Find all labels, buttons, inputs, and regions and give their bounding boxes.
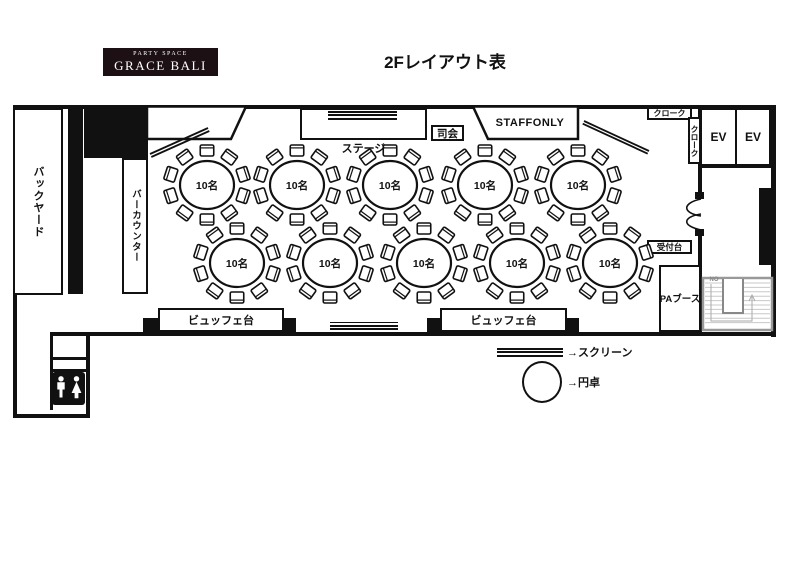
chair-icon [299, 282, 316, 299]
table-seat-label: 10名 [413, 257, 435, 270]
round-table: 10名 [567, 223, 654, 303]
chair-icon [323, 223, 337, 234]
chair-icon [344, 227, 361, 244]
chair-icon [176, 204, 193, 221]
round-table: 10名 [474, 223, 561, 303]
chair-icon [603, 292, 617, 303]
chair-icon [592, 149, 609, 166]
chair-icon [290, 214, 304, 225]
chair-icon [579, 282, 596, 299]
chair-icon [359, 204, 376, 221]
chair-icon [326, 166, 341, 182]
chair-icon [164, 188, 179, 204]
reception-label: 受付台 [647, 240, 692, 254]
chair-icon [393, 227, 410, 244]
chair-icon [567, 266, 582, 282]
chair-icon [567, 244, 582, 260]
chair-icon [359, 266, 374, 282]
chair-icon [221, 204, 238, 221]
chair-icon [474, 244, 489, 260]
floor-plan-page: { "page": { "title": "2Fレイアウト表" }, "bran… [0, 0, 800, 565]
chair-icon [514, 188, 529, 204]
chair-icon [571, 145, 585, 156]
chair-icon [454, 149, 471, 166]
chair-icon [478, 214, 492, 225]
chair-icon [251, 282, 268, 299]
chair-icon [164, 166, 179, 182]
chair-icon [344, 282, 361, 299]
chair-icon [254, 166, 269, 182]
chair-icon [486, 227, 503, 244]
chair-icon [194, 266, 209, 282]
chair-icon [287, 266, 302, 282]
chair-icon [510, 292, 524, 303]
chair-icon [347, 188, 362, 204]
chair-icon [607, 188, 622, 204]
chair-icon [547, 149, 564, 166]
chair-icon [311, 204, 328, 221]
chair-icon [393, 282, 410, 299]
table-seat-label: 10名 [474, 179, 496, 192]
bar-counter-label: バーカウンター [122, 158, 148, 294]
chair-icon [381, 266, 396, 282]
chair-icon [547, 204, 564, 221]
round-table: 10名 [164, 145, 251, 225]
chair-icon [230, 223, 244, 234]
brand-logo: PARTY SPACE GRACE BALI [103, 48, 218, 76]
plan-shapes: 10名10名10名10名10名10名10名10名10名10名 [0, 0, 800, 565]
round-table: 10名 [287, 223, 374, 303]
round-table: 10名 [535, 145, 622, 225]
page-title: 2Fレイアウト表 [360, 49, 530, 71]
backyard-label: バックヤード [13, 108, 63, 295]
chair-icon [417, 223, 431, 234]
chair-icon [486, 282, 503, 299]
chair-icon [206, 227, 223, 244]
chair-icon [419, 188, 434, 204]
cloak-top-label: クローク [647, 107, 692, 120]
round-table: 10名 [381, 223, 468, 303]
table-seat-label: 10名 [379, 179, 401, 192]
brand-name: GRACE BALI [114, 58, 207, 74]
chair-icon [454, 204, 471, 221]
chair-icon [347, 166, 362, 182]
chair-icon [607, 166, 622, 182]
chair-icon [417, 292, 431, 303]
restroom-icon [57, 376, 81, 398]
pa-booth-label: PAブース [658, 289, 702, 307]
chair-icon [326, 188, 341, 204]
chair-icon [546, 244, 561, 260]
legend-screen-label: →スクリーン [567, 345, 647, 359]
chair-icon [221, 149, 238, 166]
ev-left-label: EV [700, 108, 737, 166]
table-seat-label: 10名 [196, 179, 218, 192]
chair-icon [266, 204, 283, 221]
chair-icon [236, 188, 251, 204]
chair-icon [359, 244, 374, 260]
round-tables: 10名10名10名10名10名10名10名10名10名10名 [164, 145, 654, 303]
buffet-label-2: ビュッフェ台 [440, 308, 567, 332]
chair-icon [200, 145, 214, 156]
chair-icon [624, 282, 641, 299]
chair-icon [206, 282, 223, 299]
staffonly-label: STAFFONLY [482, 110, 578, 136]
table-seat-label: 10名 [599, 257, 621, 270]
chair-icon [535, 188, 550, 204]
chair-icon [323, 292, 337, 303]
chair-icon [442, 188, 457, 204]
chair-icon [546, 266, 561, 282]
chair-icon [266, 266, 281, 282]
screen-diagonal-right [583, 121, 649, 154]
chair-icon [442, 166, 457, 182]
legend-round-table-label: →円卓 [567, 375, 627, 389]
chair-icon [478, 145, 492, 156]
chair-icon [514, 166, 529, 182]
ev-right-label: EV [735, 108, 771, 166]
chair-icon [535, 166, 550, 182]
staircase [703, 278, 772, 330]
chair-icon [624, 227, 641, 244]
chair-icon [381, 244, 396, 260]
chair-icon [266, 244, 281, 260]
chair-icon [531, 282, 548, 299]
chair-icon [438, 227, 455, 244]
table-seat-label: 10名 [226, 257, 248, 270]
chair-icon [383, 214, 397, 225]
buffet-label-1: ビュッフェ台 [158, 308, 284, 332]
table-seat-label: 10名 [319, 257, 341, 270]
chair-icon [176, 149, 193, 166]
stage-label: ステージ [300, 141, 427, 154]
chair-icon [266, 149, 283, 166]
chair-icon [510, 223, 524, 234]
round-table: 10名 [194, 223, 281, 303]
chair-icon [251, 227, 268, 244]
stairs-note-label: NO [706, 275, 722, 284]
chair-icon [438, 282, 455, 299]
chair-icon [571, 214, 585, 225]
round-table: 10名 [442, 145, 529, 225]
chair-icon [299, 227, 316, 244]
entry-door-icon [687, 199, 701, 230]
chair-icon [453, 244, 468, 260]
chair-icon [579, 227, 596, 244]
table-seat-label: 10名 [286, 179, 308, 192]
chair-icon [474, 266, 489, 282]
chair-icon [499, 204, 516, 221]
chair-icon [531, 227, 548, 244]
chair-icon [639, 266, 654, 282]
chair-icon [287, 244, 302, 260]
mc-label: 司会 [431, 125, 464, 141]
chair-icon [230, 292, 244, 303]
chair-icon [453, 266, 468, 282]
chair-icon [419, 166, 434, 182]
round-table: 10名 [254, 145, 341, 225]
table-seat-label: 10名 [567, 179, 589, 192]
brand-tagline: PARTY SPACE [133, 51, 188, 57]
table-seat-label: 10名 [506, 257, 528, 270]
chair-icon [603, 223, 617, 234]
chair-icon [404, 204, 421, 221]
chair-icon [236, 166, 251, 182]
chair-icon [194, 244, 209, 260]
chair-icon [499, 149, 516, 166]
round-table: 10名 [347, 145, 434, 225]
chair-icon [592, 204, 609, 221]
chair-icon [200, 214, 214, 225]
chair-icon [254, 188, 269, 204]
